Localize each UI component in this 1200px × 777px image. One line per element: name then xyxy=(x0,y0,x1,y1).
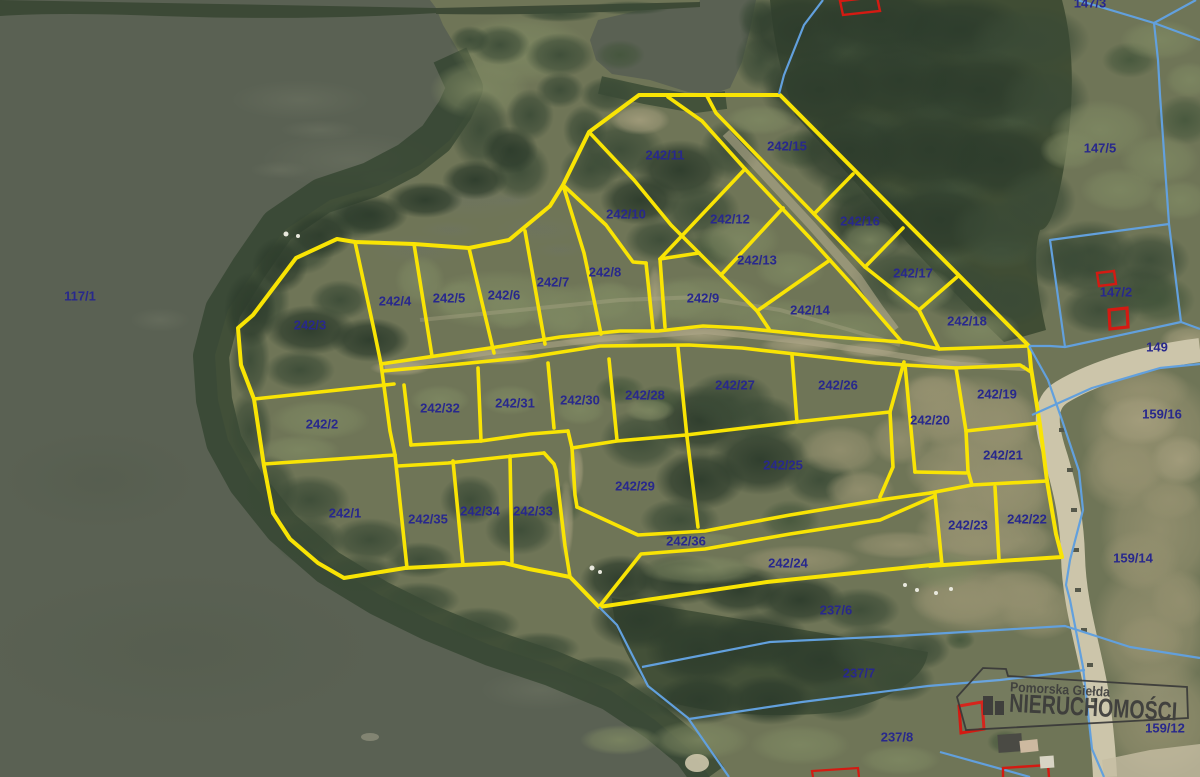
svg-text:242/25: 242/25 xyxy=(763,458,803,473)
svg-text:242/9: 242/9 xyxy=(687,291,720,306)
svg-text:117/1: 117/1 xyxy=(64,289,96,304)
svg-text:242/35: 242/35 xyxy=(408,512,448,527)
svg-text:242/27: 242/27 xyxy=(715,378,755,393)
svg-text:242/11: 242/11 xyxy=(645,148,684,163)
svg-text:242/21: 242/21 xyxy=(983,448,1023,463)
svg-text:237/8: 237/8 xyxy=(881,730,914,745)
svg-text:147/3: 147/3 xyxy=(1074,0,1107,11)
svg-text:237/7: 237/7 xyxy=(843,666,876,681)
svg-text:242/2: 242/2 xyxy=(306,417,339,432)
svg-text:242/23: 242/23 xyxy=(948,518,988,533)
svg-text:242/19: 242/19 xyxy=(977,387,1017,402)
svg-text:242/8: 242/8 xyxy=(589,265,622,280)
svg-text:242/22: 242/22 xyxy=(1007,512,1047,527)
svg-text:242/18: 242/18 xyxy=(947,314,987,329)
svg-text:242/34: 242/34 xyxy=(460,504,501,519)
svg-text:242/26: 242/26 xyxy=(818,378,858,393)
svg-text:242/5: 242/5 xyxy=(433,291,466,306)
svg-text:242/28: 242/28 xyxy=(625,388,665,403)
svg-text:242/13: 242/13 xyxy=(737,253,777,268)
svg-text:237/6: 237/6 xyxy=(820,603,853,618)
svg-text:242/1: 242/1 xyxy=(329,506,362,521)
svg-text:147/5: 147/5 xyxy=(1084,141,1117,156)
svg-text:242/20: 242/20 xyxy=(910,413,950,428)
svg-text:242/33: 242/33 xyxy=(513,504,553,519)
svg-text:242/14: 242/14 xyxy=(790,303,831,318)
svg-text:159/16: 159/16 xyxy=(1142,407,1182,422)
svg-text:242/15: 242/15 xyxy=(767,139,807,154)
svg-text:159/14: 159/14 xyxy=(1113,551,1154,566)
svg-text:149: 149 xyxy=(1146,340,1168,355)
svg-text:242/17: 242/17 xyxy=(893,266,933,281)
svg-text:242/36: 242/36 xyxy=(666,534,706,549)
svg-text:242/7: 242/7 xyxy=(537,275,570,290)
svg-text:242/4: 242/4 xyxy=(379,294,412,309)
svg-text:242/30: 242/30 xyxy=(560,393,600,408)
svg-text:242/32: 242/32 xyxy=(420,401,460,416)
svg-text:242/24: 242/24 xyxy=(768,556,809,571)
svg-text:242/31: 242/31 xyxy=(495,396,535,411)
svg-text:242/6: 242/6 xyxy=(488,288,521,303)
svg-text:147/2: 147/2 xyxy=(1100,285,1133,300)
svg-text:242/29: 242/29 xyxy=(615,479,655,494)
svg-text:242/12: 242/12 xyxy=(710,212,750,227)
svg-text:242/16: 242/16 xyxy=(840,214,880,229)
svg-text:242/10: 242/10 xyxy=(606,207,646,222)
svg-text:242/3: 242/3 xyxy=(294,318,327,333)
